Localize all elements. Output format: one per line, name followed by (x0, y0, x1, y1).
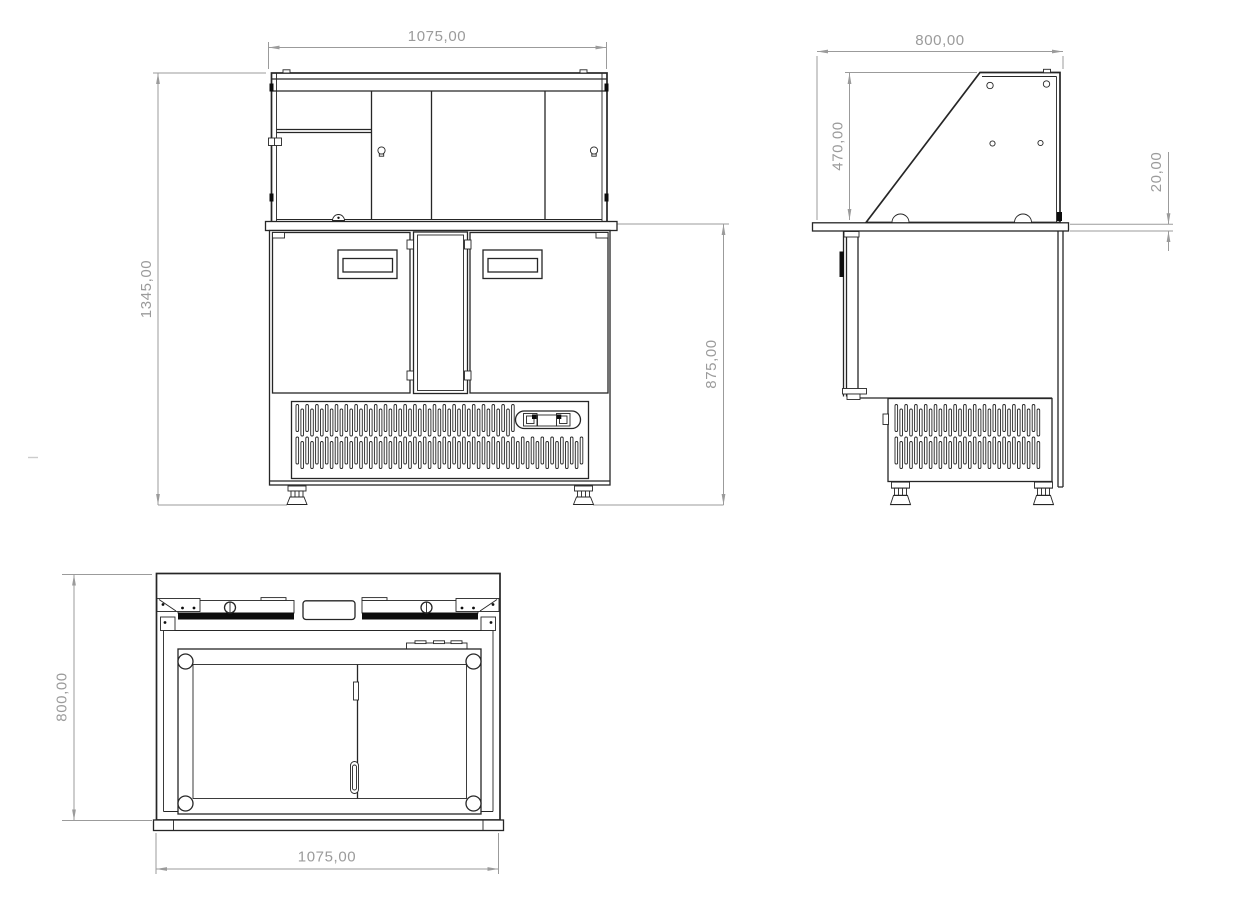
dim-side-depth: 800,00 (915, 32, 964, 49)
front-edge-band (154, 820, 504, 831)
shelf-bracket (269, 138, 282, 146)
door-hinge (465, 371, 472, 380)
side-display-profile (866, 69, 1062, 222)
corner-post (466, 796, 481, 811)
lid-hinge-tab (580, 70, 587, 73)
dim-front-width: 1075,00 (408, 28, 466, 45)
door-hinge (465, 240, 472, 249)
left-track (178, 613, 294, 620)
door-hinge (407, 240, 414, 249)
drawing-canvas: 1075,00 1345,00 875,00 (0, 0, 1234, 911)
control-panel (516, 411, 581, 429)
lid-hinge-tab (1044, 69, 1051, 72)
corner-post (178, 654, 193, 669)
door-hinge-top (844, 232, 859, 238)
door-hinge-bottom (843, 389, 867, 395)
door-hinge (407, 371, 414, 380)
divider-hinge (354, 682, 359, 700)
front-lower-body (270, 231, 611, 505)
hinge-pin (605, 84, 609, 92)
corner-post (178, 796, 193, 811)
display-frame-plan (178, 641, 481, 814)
back-panel-edge (1058, 232, 1063, 488)
hinge-pin (605, 194, 609, 202)
technical-drawing: 1075,00 1345,00 875,00 (0, 0, 1234, 911)
dim-side-display-height: 470,00 (830, 121, 847, 170)
hinge-pin (270, 194, 274, 202)
dim-plan-depth: 800,00 (54, 672, 71, 721)
hinge-pin (270, 84, 274, 92)
counter-top-side (813, 223, 1069, 231)
screw-hole (987, 82, 993, 88)
lid-hinge-tab (283, 70, 290, 73)
hinge-pin (1057, 212, 1062, 221)
front-right-foot (574, 486, 594, 505)
door-knob (590, 147, 597, 154)
corner-post (466, 654, 481, 669)
door-handle-side (840, 252, 845, 278)
side-view: 800,00 470,00 20,00 (813, 32, 1174, 505)
plan-view: 800,00 1075,00 (54, 574, 504, 875)
front-view: 1075,00 1345,00 875,00 (28, 28, 729, 505)
dim-plan-width: 1075,00 (298, 849, 356, 866)
front-display-case (269, 70, 609, 223)
front-left-foot (287, 486, 307, 505)
side-front-foot (891, 482, 911, 505)
counter-top-front (266, 222, 618, 231)
screw-hole (990, 141, 995, 146)
door-hinge (273, 233, 285, 239)
dim-side-counter-thickness: 20,00 (1148, 152, 1165, 193)
screw-hole (1043, 81, 1049, 87)
drain-fitting (883, 414, 889, 425)
side-back-foot (1034, 482, 1054, 505)
dim-front-total-height: 1345,00 (138, 260, 155, 318)
right-track (362, 613, 478, 620)
divider-handle (351, 762, 359, 794)
door-hinge (596, 233, 608, 239)
dim-front-body-height: 875,00 (703, 339, 720, 388)
center-panel (414, 232, 468, 394)
center-block (303, 601, 355, 620)
screw-hole (1038, 140, 1043, 145)
side-lower-body (840, 232, 1064, 505)
plan-body (154, 574, 504, 831)
door-knob (378, 147, 385, 154)
